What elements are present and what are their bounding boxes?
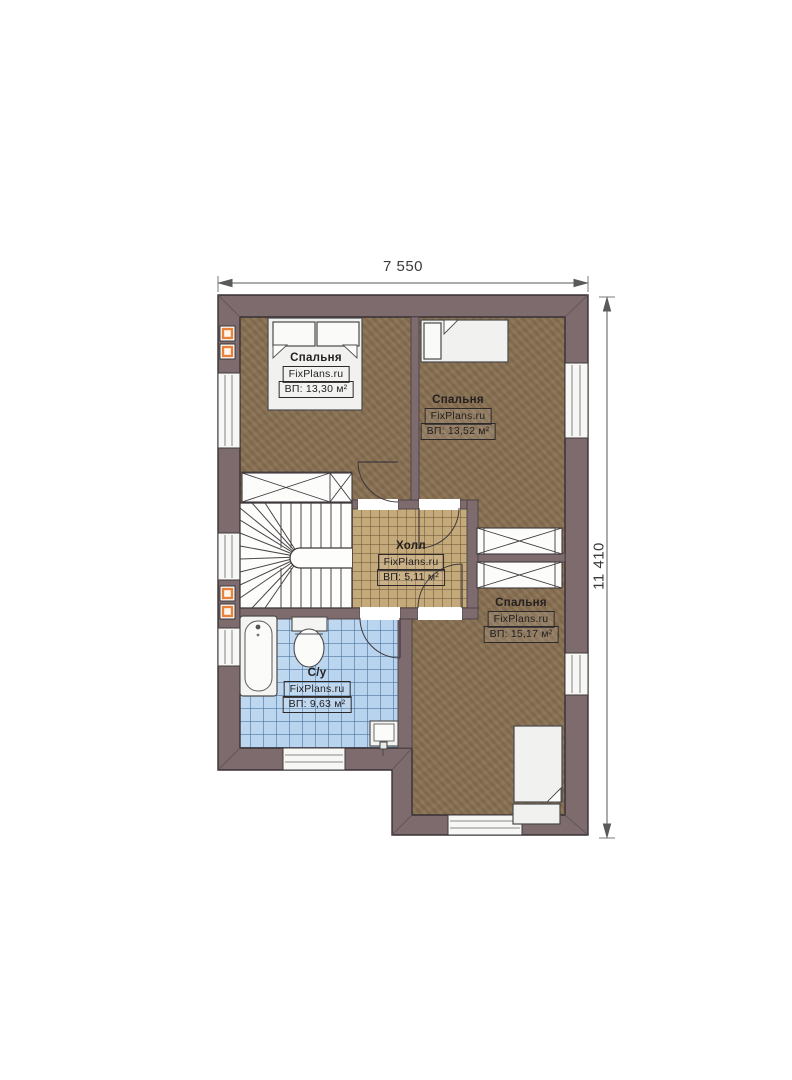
door-bedroom1 (358, 462, 398, 510)
dimension-height-label: 11 410 (591, 542, 608, 590)
staircase (240, 503, 352, 608)
room-name: С/у (308, 667, 327, 679)
nightstand (513, 804, 560, 824)
room-name: Спальня (290, 352, 342, 364)
stair-stringer (290, 548, 352, 568)
wardrobe-above-stairs (242, 473, 352, 502)
vent-icon (220, 586, 235, 601)
window-bedroom3-bottom (448, 815, 522, 835)
vent-icon (220, 604, 235, 619)
window-left-1 (218, 373, 240, 448)
door-bathroom (360, 607, 400, 658)
hall-label: Холл FixPlans.ru ВП: 5,11 м² (377, 540, 445, 586)
bathroom-label: С/у FixPlans.ru ВП: 9,63 м² (283, 667, 352, 713)
room-name: Холл (396, 540, 426, 552)
toilet (292, 617, 327, 667)
window-right-1 (565, 363, 588, 438)
area-box: ВП: 15,17 м² (484, 626, 559, 643)
bedroom-1-label: Спальня FixPlans.ru ВП: 13,30 м² (279, 352, 354, 398)
window-right-2 (565, 653, 588, 695)
bathtub (240, 616, 277, 696)
bed-single-bedroom2 (421, 320, 508, 362)
window-left-bath (218, 628, 240, 666)
area-box: ВП: 13,30 м² (279, 381, 354, 398)
area-box: ВП: 9,63 м² (283, 696, 352, 713)
dimension-width-label: 7 550 (383, 258, 423, 275)
wardrobe-bedroom2 (477, 528, 562, 554)
bedroom-2-label: Спальня FixPlans.ru ВП: 13,52 м² (421, 394, 496, 440)
area-box: ВП: 5,11 м² (377, 569, 445, 586)
vent-icon (220, 344, 235, 359)
room-name: Спальня (495, 597, 547, 609)
window-bath-bottom (283, 748, 345, 770)
room-name: Спальня (432, 394, 484, 406)
vent-icon (220, 326, 235, 341)
bed-single-bedroom3 (513, 726, 562, 824)
bedroom-3-label: Спальня FixPlans.ru ВП: 15,17 м² (484, 597, 559, 643)
wardrobe-bedroom3 (477, 562, 562, 588)
window-left-2 (218, 533, 240, 580)
floorplan-canvas: Спальня FixPlans.ru ВП: 13,30 м² Спальня… (0, 0, 792, 1080)
area-box: ВП: 13,52 м² (421, 423, 496, 440)
dimension-line-top (218, 276, 588, 292)
